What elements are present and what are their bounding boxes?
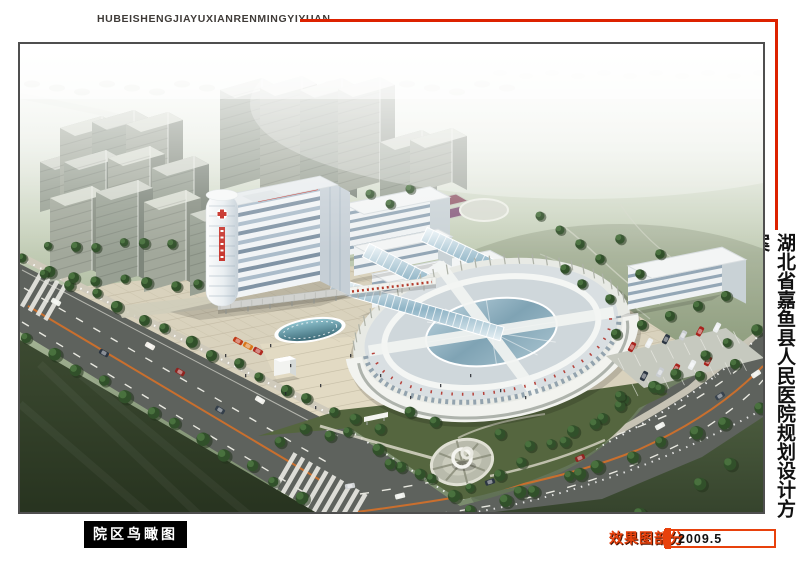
presentation-board: HUBEISHENGJIAYUXIANRENMINGYIYUAN 湖北省嘉鱼县人… (0, 0, 800, 565)
red-accent-hline (300, 19, 777, 22)
date-box-red-bar (665, 528, 671, 549)
aerial-rendering (20, 44, 763, 512)
side-title-vertical: 湖北省嘉鱼县人民医院规划设计方案 (771, 233, 797, 533)
date-box: 2009.5 (664, 529, 776, 548)
red-accent-vline (775, 19, 778, 230)
date-text: 2009.5 (678, 532, 722, 546)
caption-badge: 院区鸟瞰图 (84, 521, 187, 548)
rendering-frame (18, 42, 765, 514)
haze-overlay (20, 44, 763, 254)
header-title-pinyin: HUBEISHENGJIAYUXIANRENMINGYIYUAN (97, 13, 331, 25)
